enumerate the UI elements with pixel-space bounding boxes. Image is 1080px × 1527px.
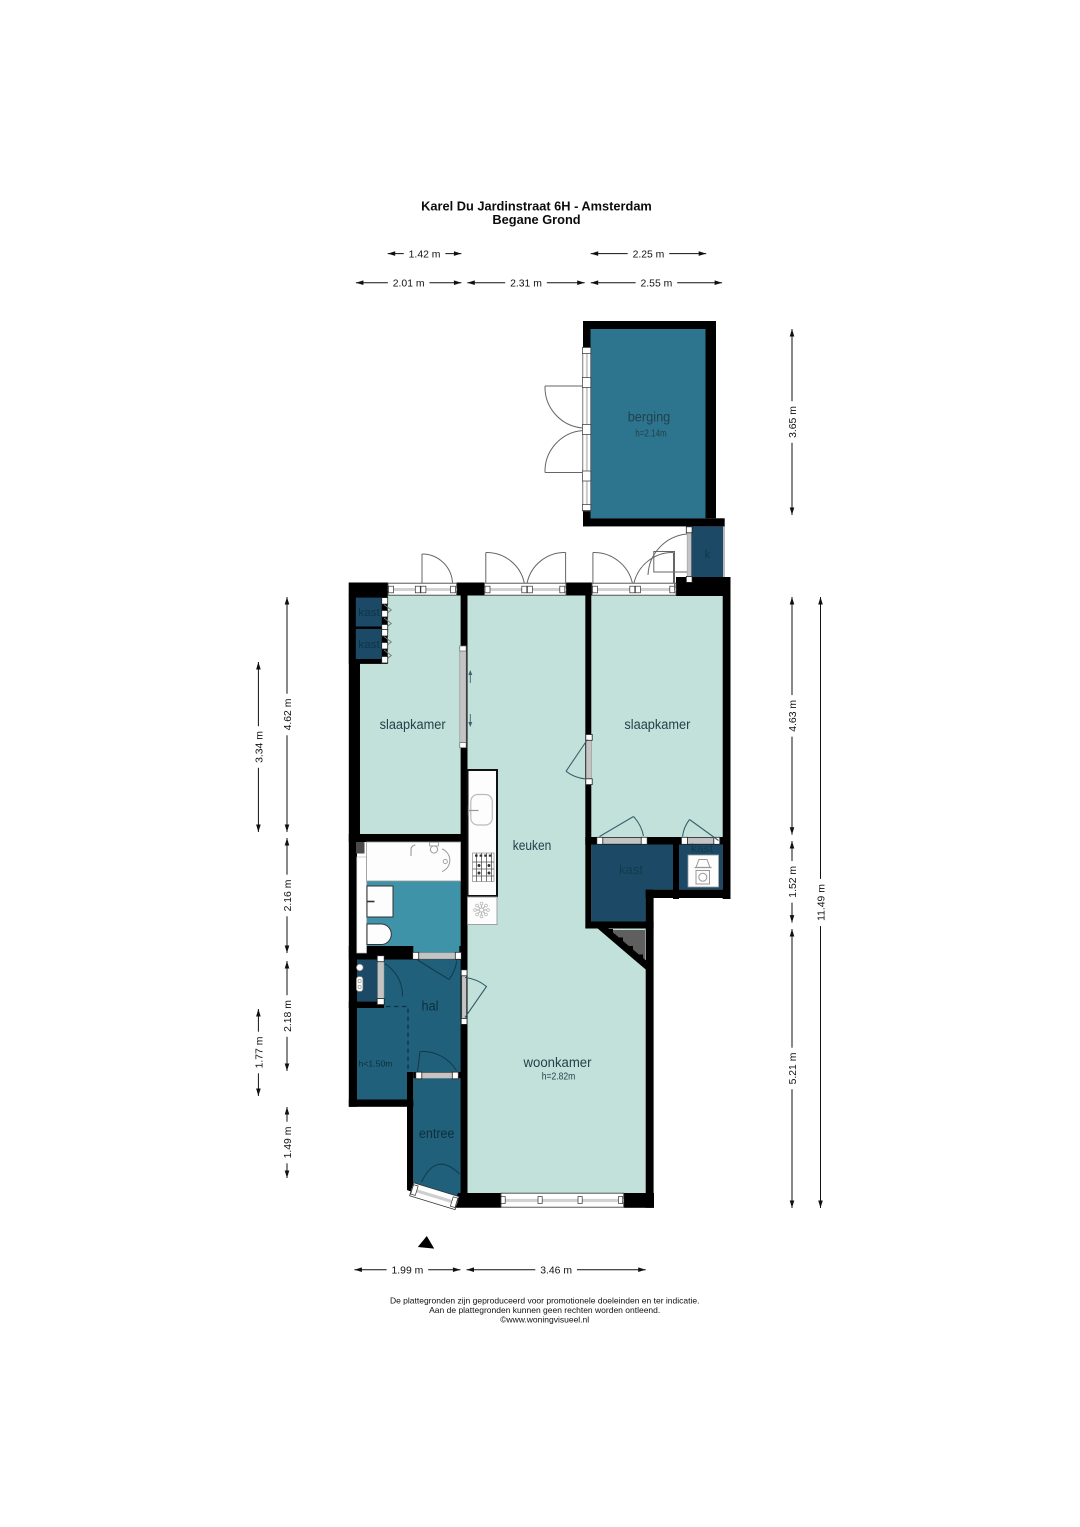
svg-text:slaapkamer: slaapkamer xyxy=(624,717,690,733)
svg-text:slaapkamer: slaapkamer xyxy=(380,717,446,733)
svg-text:kast: kast xyxy=(358,639,380,651)
svg-text:2.01 m: 2.01 m xyxy=(393,279,425,290)
svg-text:2.31 m: 2.31 m xyxy=(510,279,542,290)
svg-text:5.21 m: 5.21 m xyxy=(788,1053,799,1085)
svg-text:11.49 m: 11.49 m xyxy=(817,884,828,921)
svg-text:keuken: keuken xyxy=(513,838,552,854)
svg-text:2.16 m: 2.16 m xyxy=(283,880,294,912)
svg-text:De plattegronden zijn geproduc: De plattegronden zijn geproduceerd voor … xyxy=(390,1296,700,1306)
svg-text:3.46 m: 3.46 m xyxy=(540,1266,572,1277)
svg-text:3.34 m: 3.34 m xyxy=(254,731,265,763)
svg-text:Begane Grond: Begane Grond xyxy=(492,212,580,227)
svg-text:entree: entree xyxy=(419,1126,455,1142)
svg-text:1.42 m: 1.42 m xyxy=(409,250,441,261)
svg-text:kast: kast xyxy=(358,607,380,619)
svg-text:4.63 m: 4.63 m xyxy=(788,700,799,732)
svg-text:h<1.50m: h<1.50m xyxy=(359,1059,393,1069)
svg-text:1.99 m: 1.99 m xyxy=(392,1266,424,1277)
svg-text:woonkamer: woonkamer xyxy=(523,1055,592,1071)
svg-text:hal: hal xyxy=(422,999,439,1015)
svg-text:2.55 m: 2.55 m xyxy=(641,279,673,290)
svg-text:1.49 m: 1.49 m xyxy=(283,1127,294,1159)
svg-text:kast: kast xyxy=(619,863,644,877)
svg-text:k: k xyxy=(705,550,711,562)
svg-text:2.25 m: 2.25 m xyxy=(633,250,665,261)
svg-text:berging: berging xyxy=(628,410,671,425)
svg-text:kast: kast xyxy=(691,844,714,856)
svg-text:1.52 m: 1.52 m xyxy=(788,866,799,898)
svg-text:1.77 m: 1.77 m xyxy=(254,1037,265,1069)
svg-text:4.62 m: 4.62 m xyxy=(283,699,294,731)
svg-text:©www.woningvisueel.nl: ©www.woningvisueel.nl xyxy=(500,1314,589,1324)
svg-text:h=2.82m: h=2.82m xyxy=(542,1072,576,1083)
svg-text:2.18 m: 2.18 m xyxy=(283,1000,294,1032)
svg-text:h=2.14m: h=2.14m xyxy=(635,429,667,440)
svg-text:3.65 m: 3.65 m xyxy=(788,406,799,438)
